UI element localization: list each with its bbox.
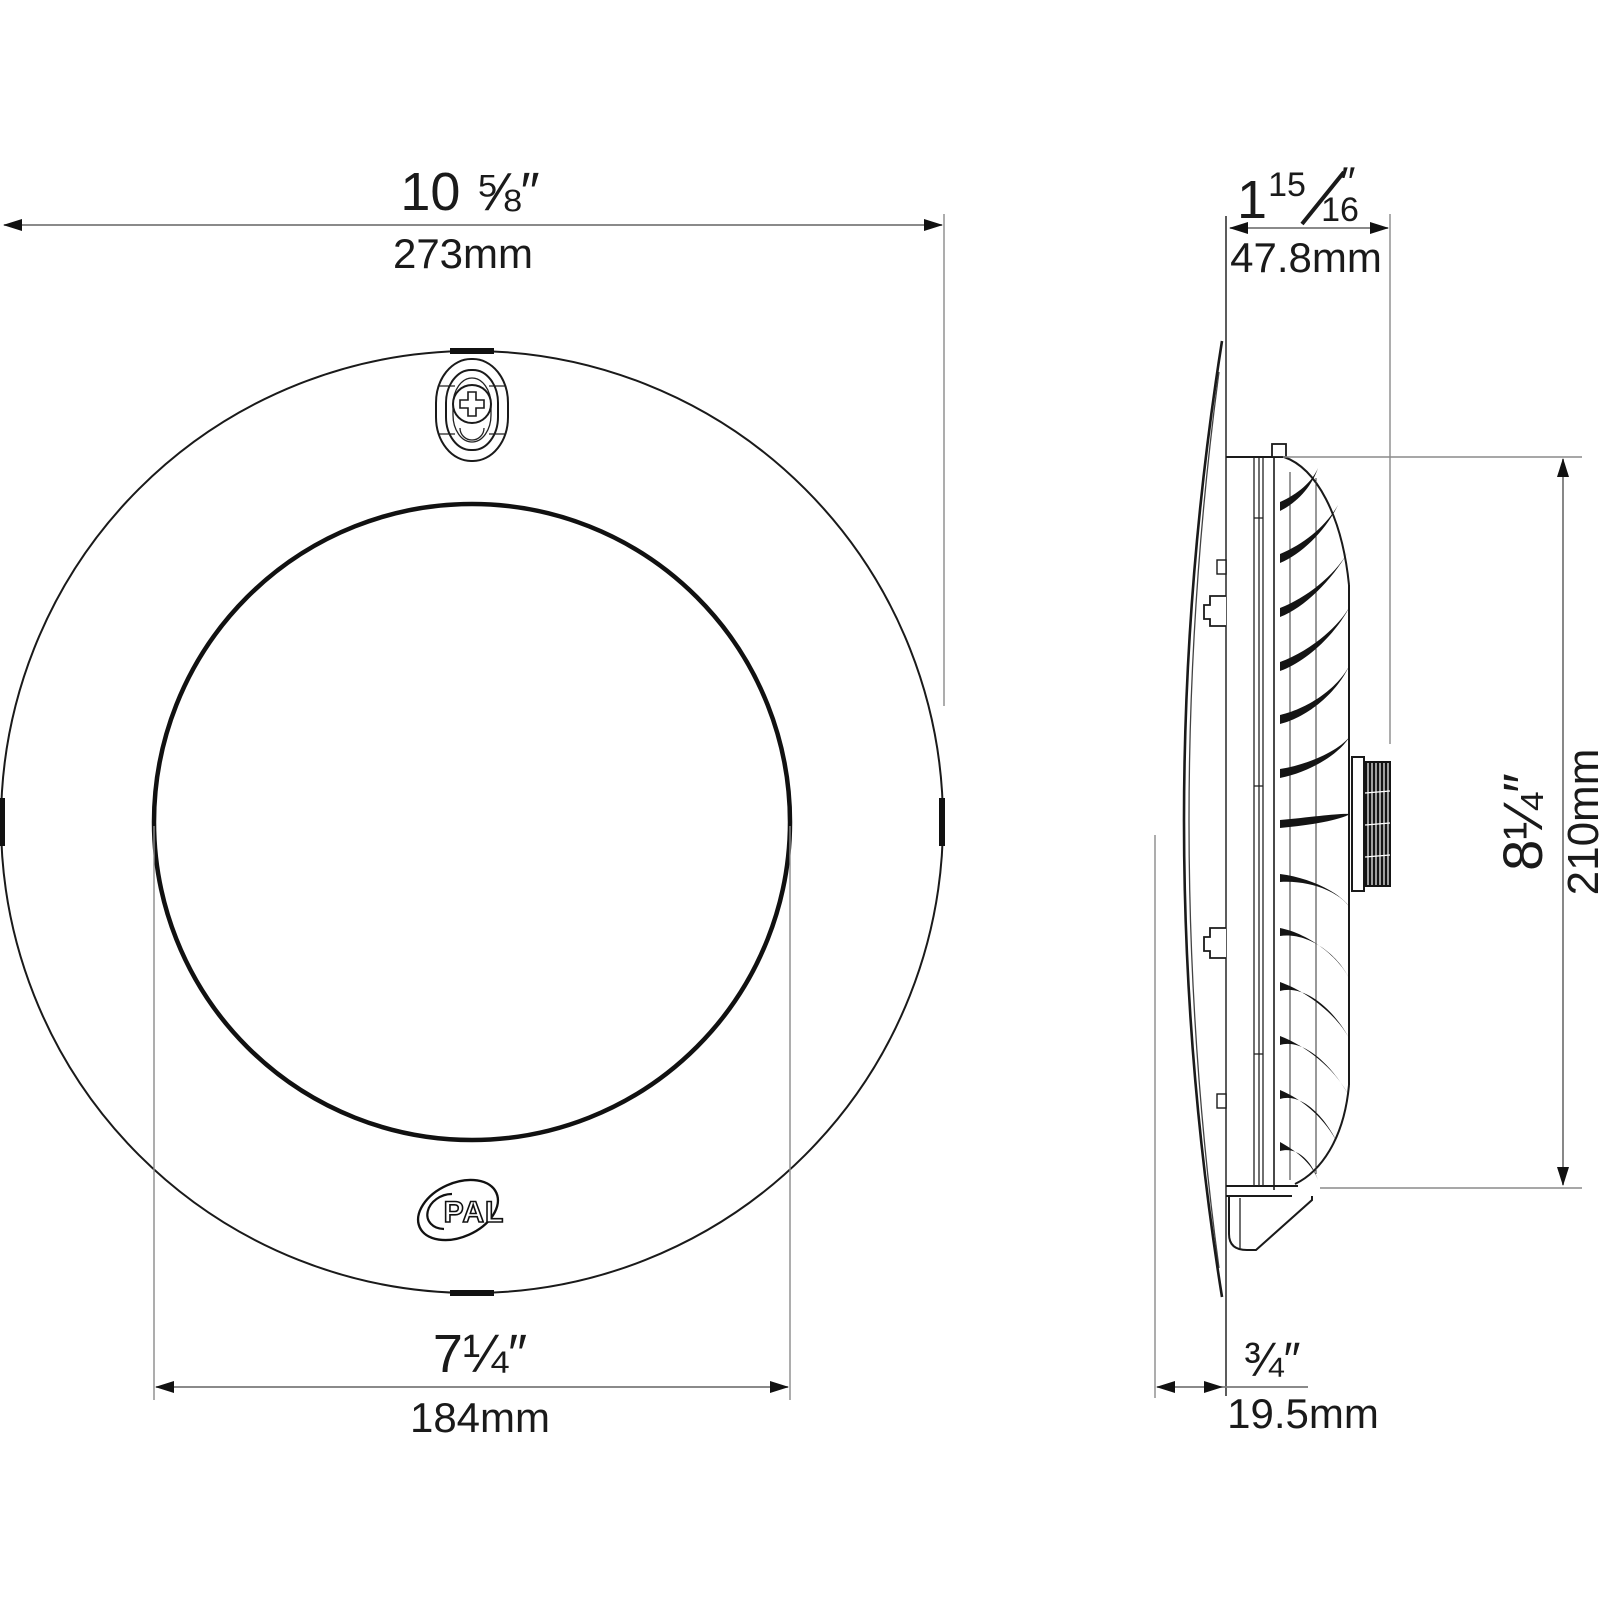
dimension-drawing: PAL 10 ⅝″ 273mm 7¼″ 184mm [0, 0, 1600, 1600]
depth-inches-label: 1 15 16 ″ [1237, 158, 1359, 230]
foot-bracket [1229, 1196, 1312, 1250]
svg-text:1: 1 [1237, 170, 1267, 230]
screw-detail [436, 359, 508, 461]
dim-body-height: 8¼″ 210mm [1283, 457, 1600, 1188]
outer-ring-circle [1, 351, 943, 1293]
svg-text:″: ″ [1341, 158, 1356, 205]
dim-lens-diameter: 7¼″ 184mm [154, 826, 790, 1441]
outer-diameter-inches: 10 ⅝″ [400, 162, 539, 222]
dim-lens-protrusion: ¾″ 19.5mm [1155, 835, 1379, 1437]
svg-text:15: 15 [1268, 166, 1306, 204]
rim-clips [1204, 560, 1226, 1108]
side-view [1184, 216, 1391, 1396]
lens-profile [1184, 341, 1222, 1297]
lens-diameter-mm: 184mm [410, 1394, 550, 1441]
dim-outer-diameter: 10 ⅝″ 273mm [3, 162, 944, 706]
pal-logo: PAL [409, 1168, 508, 1251]
depth-mm: 47.8mm [1230, 234, 1382, 281]
body-height-mm: 210mm [1559, 749, 1600, 896]
body-height-inches: 8¼″ [1491, 773, 1554, 871]
ring-notches [2, 351, 942, 1293]
pal-logo-text: PAL [444, 1196, 505, 1229]
lens-protrusion-mm: 19.5mm [1227, 1390, 1379, 1437]
lens-protrusion-inches: ¾″ [1243, 1334, 1300, 1387]
front-view: PAL [1, 351, 943, 1293]
conduit-connector [1352, 757, 1391, 891]
outer-diameter-mm: 273mm [393, 230, 533, 277]
dim-depth: 1 15 16 ″ 47.8mm [1229, 158, 1390, 744]
lens-diameter-inches: 7¼″ [433, 1324, 527, 1384]
lens-circle [154, 504, 790, 1140]
